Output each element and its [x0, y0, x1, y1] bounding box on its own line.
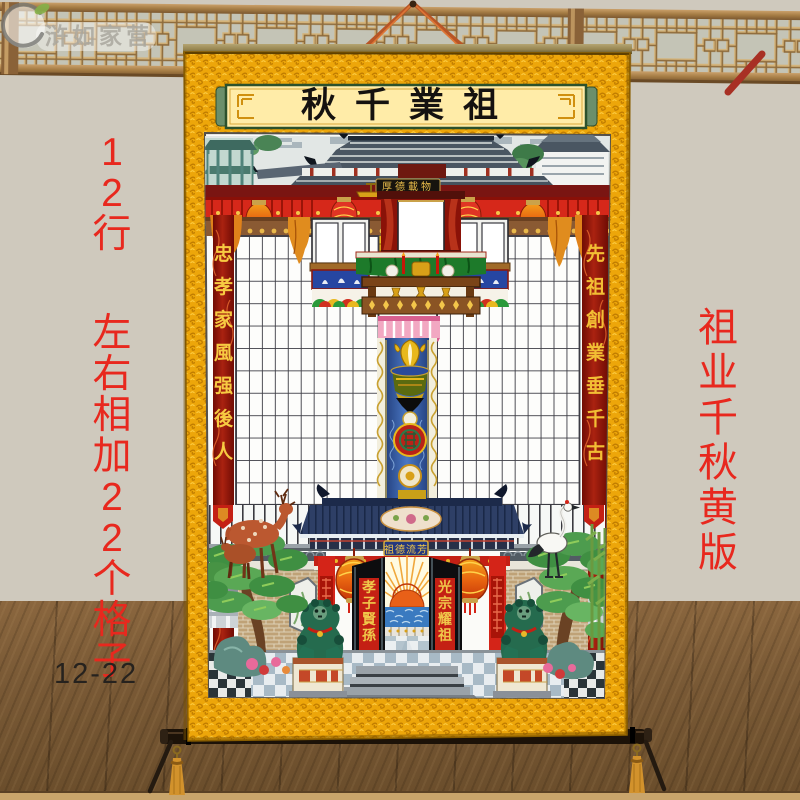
svg-text:孝子賢孫: 孝子賢孫 — [361, 579, 377, 644]
svg-text:秋千業祖: 秋千業祖 — [301, 86, 517, 125]
svg-text:祖德流芳: 祖德流芳 — [384, 543, 428, 556]
svg-text:光宗耀祖: 光宗耀祖 — [437, 579, 452, 644]
